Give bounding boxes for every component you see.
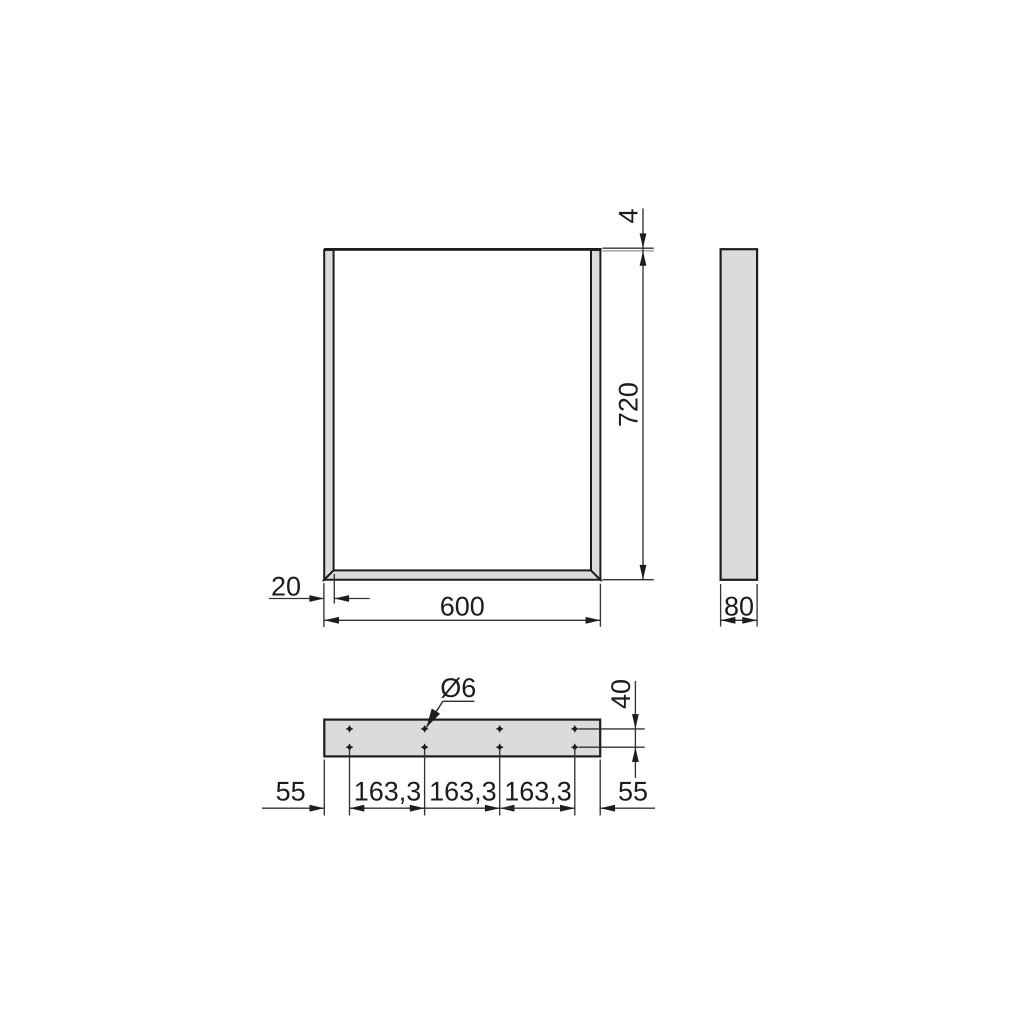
- svg-text:80: 80: [724, 592, 754, 622]
- svg-text:163,3: 163,3: [429, 776, 497, 806]
- svg-text:720: 720: [613, 382, 643, 427]
- svg-text:40: 40: [606, 679, 636, 709]
- svg-text:Ø6: Ø6: [440, 673, 476, 703]
- svg-text:600: 600: [440, 591, 485, 621]
- svg-text:20: 20: [271, 571, 301, 601]
- svg-text:163,3: 163,3: [354, 776, 422, 806]
- svg-text:55: 55: [618, 776, 648, 806]
- svg-text:163,3: 163,3: [504, 776, 572, 806]
- svg-text:55: 55: [276, 776, 306, 806]
- svg-text:4: 4: [614, 208, 644, 223]
